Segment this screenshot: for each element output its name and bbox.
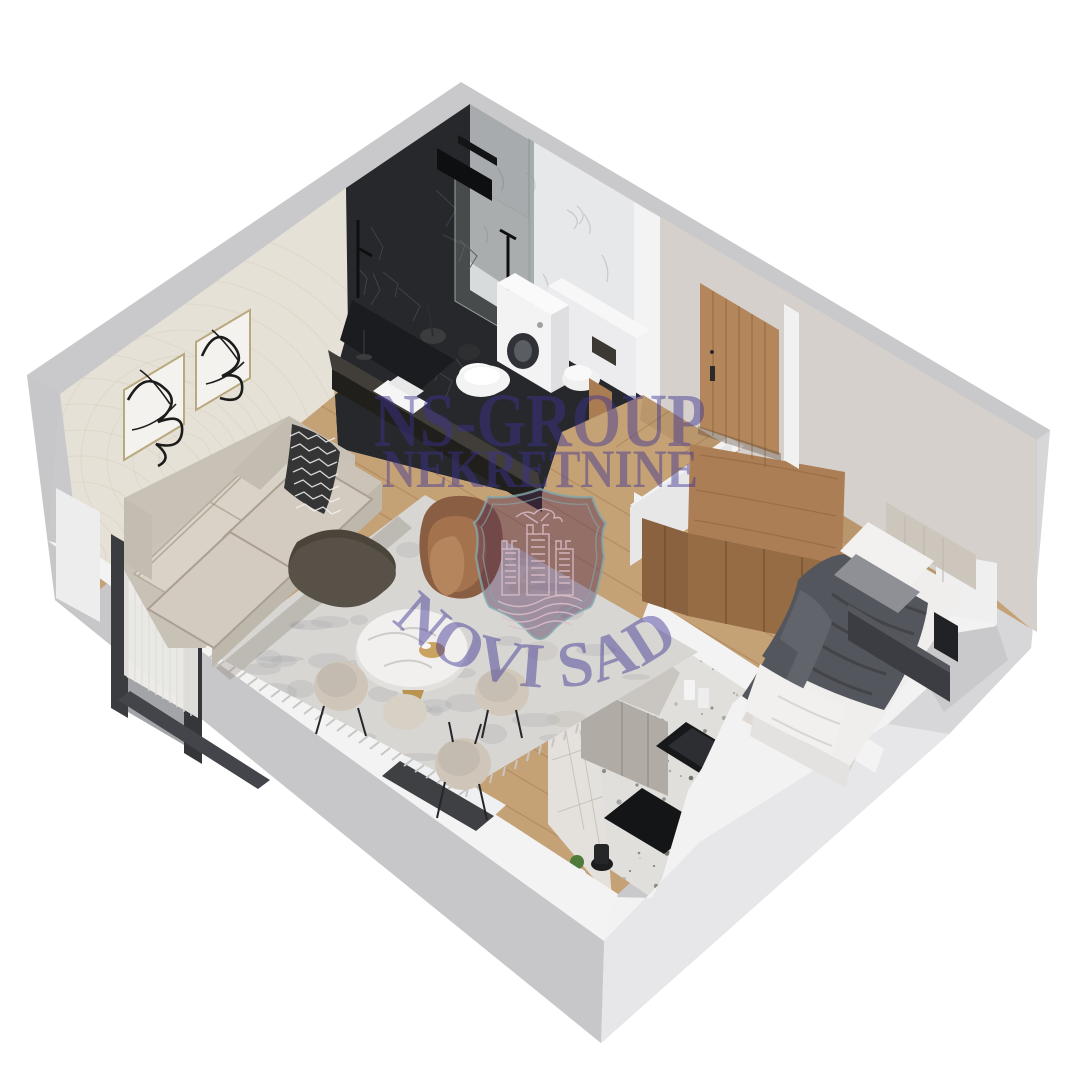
svg-text:NEKRETNINE: NEKRETNINE <box>382 439 698 499</box>
